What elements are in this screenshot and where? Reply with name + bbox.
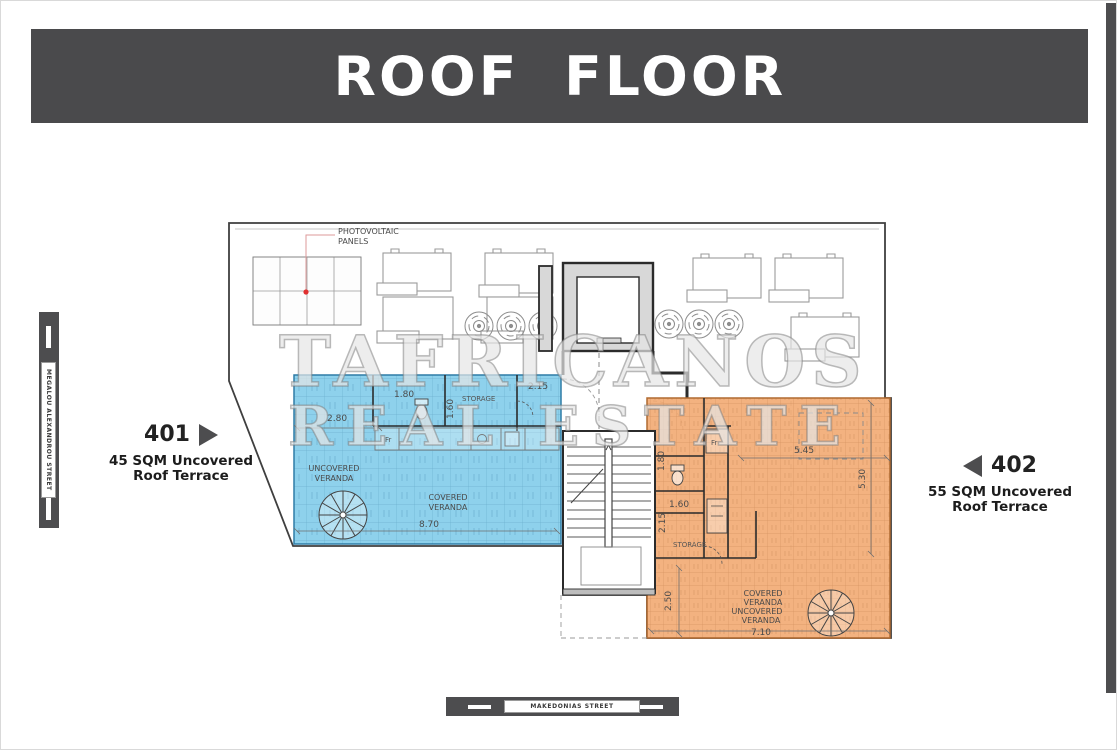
dim-545: 5.45 bbox=[794, 446, 814, 456]
dim-160-blue: 1.60 bbox=[446, 399, 456, 419]
storage-label-401: STORAGE bbox=[462, 395, 495, 403]
dim-160-orange: 1.60 bbox=[669, 500, 689, 510]
street-left-label: MEGALOU ALEXANDROU STREET bbox=[45, 369, 52, 491]
photovoltaic-label-line1: PHOTOVOLTAIC bbox=[338, 227, 399, 236]
uncovered-veranda-401-line2: VERANDA bbox=[315, 474, 354, 483]
dim-215-blue: 2.15 bbox=[528, 382, 548, 392]
floorplan-drawing: PHOTOVOLTAIC PANELS bbox=[216, 196, 916, 661]
street-centerline-dash bbox=[468, 705, 491, 709]
spiral-staircase-402 bbox=[808, 590, 854, 636]
unit-401-terrace-region bbox=[294, 375, 561, 544]
uncovered-veranda-402-line2: VERANDA bbox=[742, 616, 781, 625]
street-bottom-label: MAKEDONIAS STREET bbox=[530, 703, 613, 710]
photovoltaic-label-line2: PANELS bbox=[338, 237, 368, 246]
street-bar-left: MEGALOU ALEXANDROU STREET bbox=[39, 312, 59, 528]
page-title: ROOF FLOOR bbox=[333, 45, 786, 108]
fridge-label-401: Fr bbox=[385, 436, 392, 444]
covered-veranda-401-line1: COVERED bbox=[428, 493, 467, 502]
central-staircase bbox=[561, 431, 655, 638]
dim-530: 5.30 bbox=[858, 469, 868, 489]
kitchen-counter bbox=[375, 428, 559, 450]
toilet-fixture bbox=[415, 399, 428, 419]
covered-veranda-402-line1: COVERED bbox=[743, 589, 782, 598]
arrow-left-icon bbox=[963, 455, 982, 477]
dim-870: 8.70 bbox=[419, 520, 439, 530]
covered-veranda-402-line2: VERANDA bbox=[744, 598, 783, 607]
dim-250: 2.50 bbox=[664, 591, 674, 611]
dim-180-blue: 1.80 bbox=[394, 390, 414, 400]
panel-marker-dot bbox=[303, 289, 308, 294]
street-bar-right bbox=[1106, 3, 1117, 693]
dim-180-orange: 1.80 bbox=[657, 451, 667, 471]
title-bar: ROOF FLOOR bbox=[31, 29, 1088, 123]
uncovered-veranda-401-line1: UNCOVERED bbox=[309, 464, 360, 473]
unit-402-desc-line2: Roof Terrace bbox=[916, 500, 1084, 515]
street-bottom-label-box: MAKEDONIAS STREET bbox=[504, 700, 640, 713]
spiral-staircase-401 bbox=[319, 491, 367, 539]
unit-402-desc-line1: 55 SQM Uncovered bbox=[916, 485, 1084, 500]
unit-402-number: 402 bbox=[991, 453, 1037, 478]
covered-veranda-401-line2: VERANDA bbox=[429, 503, 468, 512]
dim-280: 2.80 bbox=[327, 414, 347, 424]
storage-label-402: STORAGE bbox=[673, 541, 706, 549]
street-bar-bottom: MAKEDONIAS STREET bbox=[446, 697, 679, 716]
uncovered-veranda-402-line1: UNCOVERED bbox=[732, 607, 783, 616]
unit-402-callout: 402 55 SQM Uncovered Roof Terrace bbox=[916, 453, 1084, 515]
street-centerline-dash bbox=[640, 705, 663, 709]
floorplan-page: ROOF FLOOR MEGALOU ALEXANDROU STREET MAK… bbox=[0, 0, 1117, 750]
street-centerline-dash bbox=[46, 326, 51, 348]
street-centerline-dash bbox=[46, 498, 51, 520]
unit-401-number: 401 bbox=[144, 422, 190, 447]
dim-215-orange: 2.15 bbox=[658, 513, 668, 533]
street-left-label-box: MEGALOU ALEXANDROU STREET bbox=[41, 362, 56, 498]
toilet-fixture bbox=[671, 465, 684, 485]
dim-710: 7.10 bbox=[751, 628, 771, 638]
fridge-label-402: Fr bbox=[711, 439, 718, 447]
